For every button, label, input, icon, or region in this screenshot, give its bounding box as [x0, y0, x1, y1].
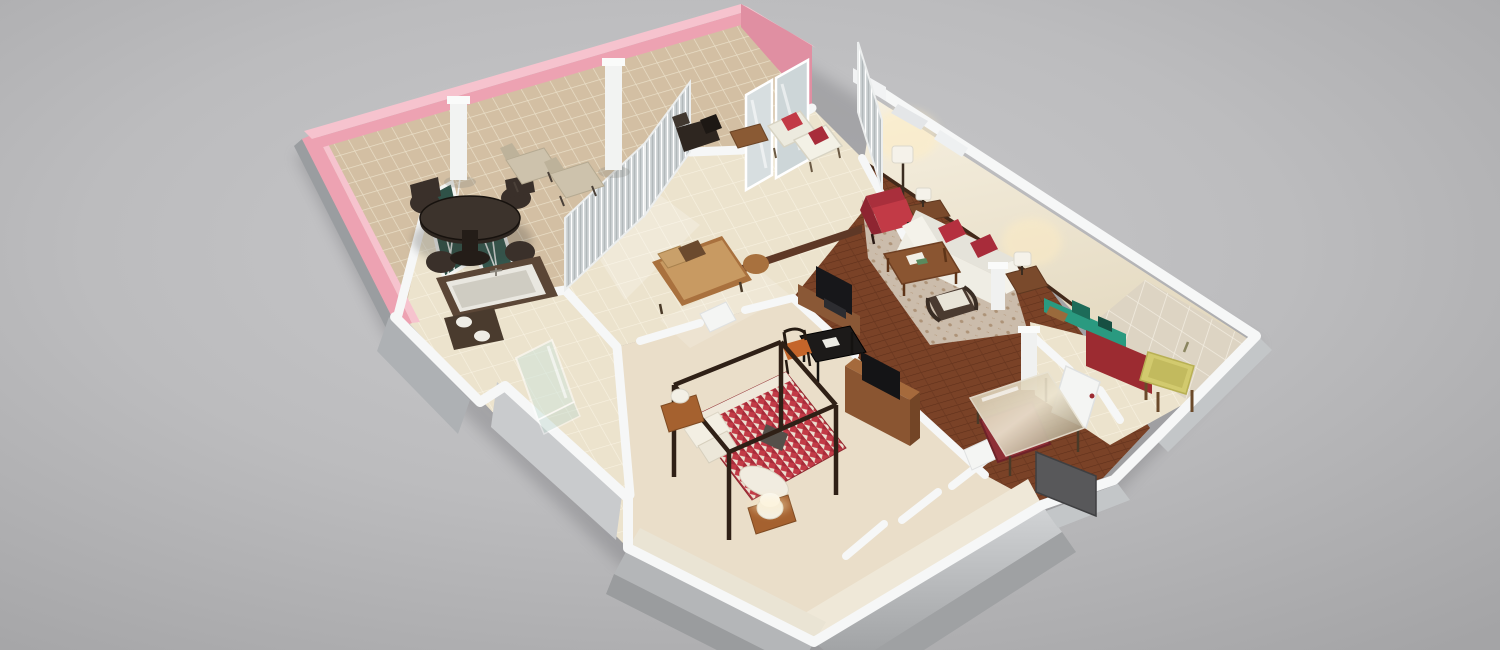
- drum-side-table: [743, 254, 769, 274]
- floor-plan-svg: [0, 0, 1500, 650]
- door-handle: [1090, 394, 1095, 399]
- white-column: [988, 262, 1008, 310]
- table-base: [450, 250, 490, 266]
- floor-plan-render: [0, 0, 1500, 650]
